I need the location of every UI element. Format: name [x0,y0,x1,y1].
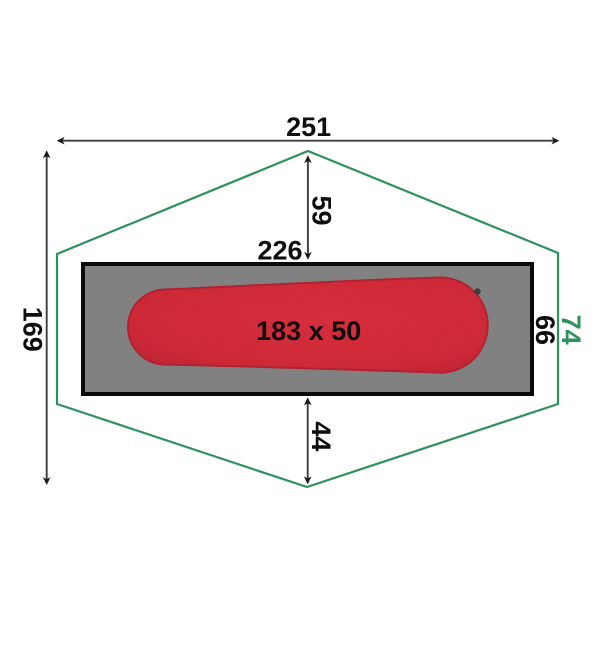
svg-text:44: 44 [306,421,336,451]
svg-text:226: 226 [257,236,302,266]
svg-text:59: 59 [307,195,337,225]
svg-text:169: 169 [18,307,48,352]
svg-text:66: 66 [530,315,560,345]
svg-text:74: 74 [556,315,586,345]
svg-text:183 x 50: 183 x 50 [256,316,361,346]
svg-text:251: 251 [286,112,331,142]
